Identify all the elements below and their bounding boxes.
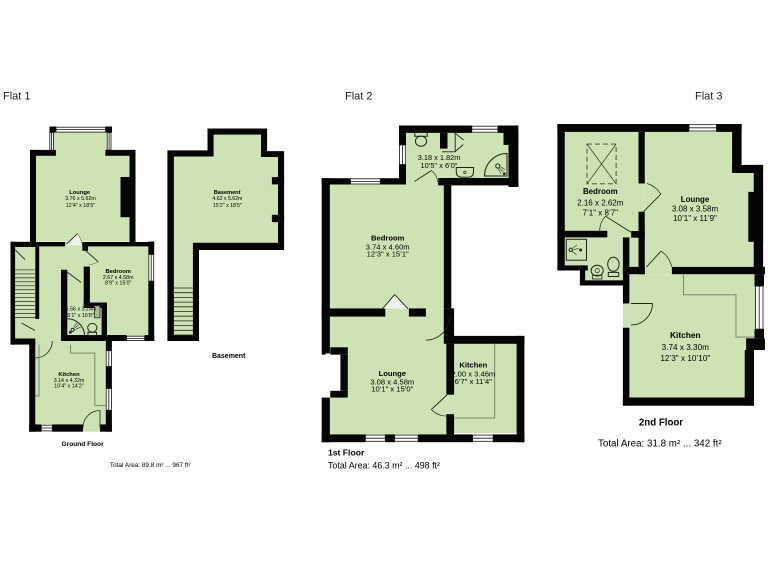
svg-text:12’4" x 18’5": 12’4" x 18’5" [66,203,96,209]
svg-text:Lounge: Lounge [681,195,710,204]
svg-text:12’3" x 10’10": 12’3" x 10’10" [660,354,710,363]
svg-text:15’2" x 18’5": 15’2" x 18’5" [213,203,242,209]
svg-text:Bedroom: Bedroom [583,187,618,196]
svg-text:Total Area: 31.8 m² ... 342 ft: Total Area: 31.8 m² ... 342 ft² [598,439,722,450]
svg-text:Bedroom: Bedroom [371,233,405,242]
svg-text:10’5" x 6’0": 10’5" x 6’0" [421,161,458,170]
svg-text:10’1" x 11’9": 10’1" x 11’9" [673,214,717,223]
svg-text:Ground Floor: Ground Floor [62,441,105,448]
svg-text:1st Floor: 1st Floor [328,448,365,458]
svg-text:10’1" x 15’0": 10’1" x 15’0" [371,385,413,394]
svg-text:12’3" x 15’1": 12’3" x 15’1" [367,249,409,258]
svg-text:8’9" x 15’0": 8’9" x 15’0" [105,281,132,287]
svg-text:Kitchen: Kitchen [670,330,701,340]
svg-text:Kitchen: Kitchen [459,361,487,370]
svg-text:Total Area: 89.8 m² ... 967 ft: Total Area: 89.8 m² ... 967 ft² [110,462,191,469]
svg-text:Basement: Basement [214,190,241,196]
svg-text:3.76 x 5.62m: 3.76 x 5.62m [65,196,96,202]
svg-text:5’1" x 10’8": 5’1" x 10’8" [67,313,94,319]
svg-text:3.74 x 3.30m: 3.74 x 3.30m [662,343,710,352]
svg-text:Flat 3: Flat 3 [695,91,723,103]
svg-text:7’1" x 8’7": 7’1" x 8’7" [583,208,619,217]
svg-text:2.16 x 2.62m: 2.16 x 2.62m [577,199,624,208]
svg-text:2nd Floor: 2nd Floor [639,417,683,428]
svg-text:Flat 2: Flat 2 [345,91,373,103]
svg-text:3.08 x 3.58m: 3.08 x 3.58m [672,204,719,213]
svg-text:Total Area: 46.3 m² ... 498 ft: Total Area: 46.3 m² ... 498 ft² [328,461,440,471]
svg-text:10’4" x 14’2": 10’4" x 14’2" [54,384,84,390]
svg-text:6’7" x 11’4": 6’7" x 11’4" [455,377,493,386]
svg-text:4.62 x 5.62m: 4.62 x 5.62m [212,196,242,202]
svg-text:1.56 x 3.24m: 1.56 x 3.24m [66,307,97,313]
svg-text:Flat 1: Flat 1 [3,91,31,103]
svg-text:Lounge: Lounge [69,190,91,196]
svg-text:Basement: Basement [212,353,246,360]
